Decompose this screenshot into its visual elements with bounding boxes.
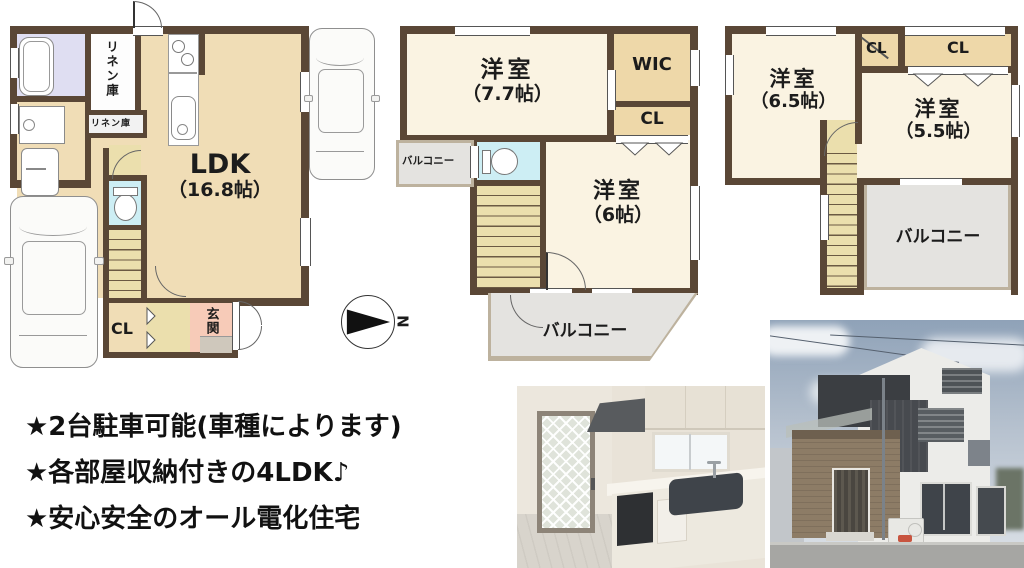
- cabinet-seam: [685, 386, 686, 428]
- faucet-arm: [707, 461, 721, 464]
- small-window: [968, 440, 990, 466]
- flyer-canvas: LDK （16.8帖） リネン庫 リネン庫 CL 玄関 N: [0, 0, 1024, 568]
- faucet: [713, 462, 716, 478]
- entrance-step: [826, 532, 874, 541]
- room-6-5-name: 洋室: [732, 68, 855, 92]
- sliding-window: [920, 482, 972, 536]
- wall: [857, 185, 864, 295]
- wall: [725, 178, 827, 185]
- window: [1011, 85, 1020, 137]
- window: [905, 26, 1005, 36]
- kitchen-window: [652, 432, 730, 472]
- room-6-5-label: 洋室 （6.5帖）: [732, 68, 855, 112]
- entrance-door-photo: [832, 468, 870, 536]
- floorplan-3f: バルコニー 洋室 （6.5帖） CL CL 洋室 （5.5帖）: [0, 0, 1024, 310]
- feature-line-3: ★安心安全のオール電化住宅: [25, 498, 360, 535]
- window-frame: [689, 434, 691, 470]
- curb-line: [770, 542, 1024, 545]
- room-6-5-size: （6.5帖）: [732, 92, 855, 112]
- wall: [820, 288, 864, 295]
- kitchen-photo: [517, 386, 765, 568]
- louver-window: [942, 368, 982, 394]
- cl2-label: CL: [905, 39, 1011, 57]
- cl1-label: CL: [866, 40, 887, 57]
- room-5-5-label: 洋室 （5.5帖）: [866, 98, 1011, 142]
- window: [766, 26, 836, 36]
- room-5-5-size: （5.5帖）: [866, 122, 1011, 142]
- room-5-5-name: 洋室: [866, 98, 1011, 122]
- small-window: [976, 486, 1006, 536]
- stove-front: [617, 492, 653, 546]
- cabinet-seam: [725, 386, 726, 428]
- kitchen-door: [537, 411, 595, 533]
- wall: [898, 34, 905, 66]
- balcony-3f-label: バルコニー: [868, 228, 1008, 247]
- utility-pole: [882, 378, 885, 540]
- feature-line-2: ★各部屋収納付きの4LDK♪: [25, 452, 349, 489]
- door-handle: [591, 478, 595, 490]
- wall: [725, 26, 732, 185]
- stairs-3f: [827, 144, 857, 288]
- feature-line-1: ★2台駐車可能(車種によります): [25, 406, 402, 443]
- road: [770, 542, 1024, 568]
- window: [820, 195, 829, 240]
- upper-cabinets: [645, 386, 765, 430]
- window-frame: [943, 484, 945, 530]
- wall: [1011, 26, 1018, 295]
- folding-door-icon: [912, 73, 1006, 88]
- exterior-photo: [770, 320, 1024, 568]
- ground-item: [898, 535, 912, 542]
- louver-window: [918, 408, 964, 442]
